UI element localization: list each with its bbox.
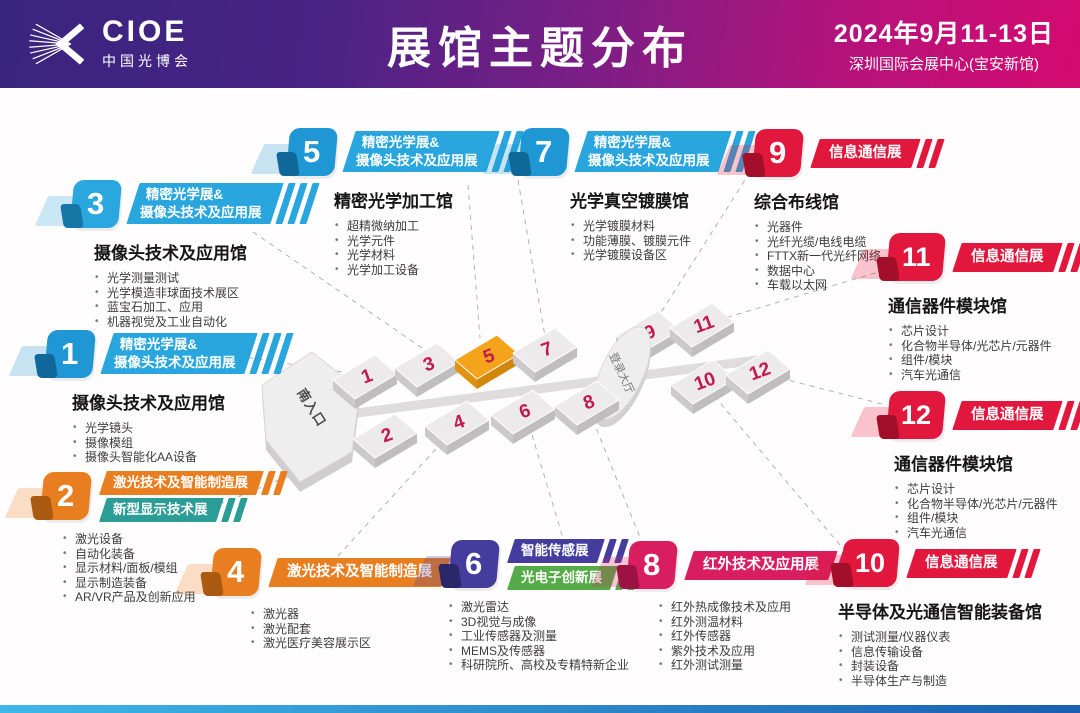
exhibit-item: 光学材料 <box>334 248 529 263</box>
exhibit-item: 紫外技术及应用 <box>658 644 857 659</box>
theme-label: 摄像头技术及应用展 <box>356 152 478 170</box>
exhibit-item: 信息传输设备 <box>838 645 1042 660</box>
theme-ribbon-row: 精密光学展&摄像头技术及应用展 <box>107 333 287 374</box>
theme-ribbon: 信息通信展 <box>952 243 1062 272</box>
section-5-body: 精密光学加工馆超精微纳加工光学元件光学材料光学加工设备 <box>334 187 529 277</box>
exhibit-item: 光学加工设备 <box>334 263 529 278</box>
hall-4-number-badge: 4 <box>210 548 262 596</box>
hall-name: 光学真空镀膜馆 <box>570 187 761 212</box>
exhibit-item: 工业传感器及测量 <box>448 629 638 644</box>
hall-12-number-badge: 12 <box>886 391 946 439</box>
hall-1-number-badge: 1 <box>44 330 96 378</box>
theme-label: 智能传感展 <box>521 542 589 560</box>
exhibit-item: 摄像头智能化AA设备 <box>72 450 287 465</box>
theme-label: 信息通信展 <box>971 406 1044 425</box>
hall-number: 10 <box>855 548 885 579</box>
exhibit-item: 化合物半导体/光芯片/元器件 <box>888 339 1080 354</box>
hall-name: 半导体及光通信智能装备馆 <box>838 598 1042 623</box>
section-3-header: 3精密光学展&摄像头技术及应用展 <box>66 180 313 228</box>
theme-ribbon: 精密光学展&摄像头技术及应用展 <box>342 131 499 172</box>
logo-subtext: 中国光博会 <box>102 51 192 71</box>
hall-9-number-badge: 9 <box>752 129 804 177</box>
bottom-accent-bar <box>0 705 1080 713</box>
hall-8-number-badge: 8 <box>626 541 678 589</box>
exhibit-item: 组件/模块 <box>888 353 1080 368</box>
exhibit-item: 激光器 <box>250 607 470 622</box>
connector-line <box>587 405 643 545</box>
exhibit-item: 封装设备 <box>838 659 1042 674</box>
theme-ribbon-row: 激光技术及智能制造展 <box>103 471 284 495</box>
theme-label: 激光技术及智能制造展 <box>113 474 248 492</box>
theme-ribbon-row: 信息通信展 <box>957 243 1080 272</box>
section-9-header: 9信息通信展 <box>748 129 940 177</box>
theme-ribbon: 信息通信展 <box>810 139 920 168</box>
theme-ribbons: 信息通信展 <box>911 549 1036 578</box>
exhibit-item: 光学测量测试 <box>94 271 313 286</box>
section-5: 5精密光学展&摄像头技术及应用展精密光学加工馆超精微纳加工光学元件光学材料光学加… <box>282 128 529 277</box>
hall-number: 8 <box>643 547 660 583</box>
exhibit-item: 激光配套 <box>250 622 470 637</box>
theme-ribbon-row: 新型显示技术展 <box>103 498 244 522</box>
event-date-venue: 2024年9月11-13日 深圳国际会展中心(宝安新馆) <box>834 14 1054 74</box>
hall-name: 通信器件模块馆 <box>888 292 1080 317</box>
hall-5-number-badge: 5 <box>286 128 338 176</box>
exhibit-item: 红外测试测量 <box>658 658 857 673</box>
theme-ribbon: 智能传感展 <box>507 539 604 563</box>
exhibit-item-list: 光学镀膜材料功能薄膜、镀膜元件光学镀膜设备区 <box>570 219 761 263</box>
theme-ribbons: 信息通信展 <box>957 243 1080 272</box>
hall-number: 7 <box>535 134 552 170</box>
exhibit-item: 汽车光通信 <box>894 526 1080 541</box>
hall-number: 11 <box>902 242 931 273</box>
event-date: 2024年9月11-13日 <box>834 14 1054 50</box>
section-12-header: 12信息通信展 <box>882 391 1080 439</box>
theme-ribbon-row: 信息通信展 <box>911 549 1036 578</box>
section-7-body: 光学真空镀膜馆光学镀膜材料功能薄膜、镀膜元件光学镀膜设备区 <box>570 187 761 263</box>
theme-ribbon: 信息通信展 <box>906 549 1016 578</box>
exhibit-item: 组件/模块 <box>894 511 1080 526</box>
theme-ribbon: 信息通信展 <box>952 401 1062 430</box>
theme-ribbons: 信息通信展 <box>815 139 940 168</box>
exhibit-item: 红外测温材料 <box>658 615 857 630</box>
theme-label: 精密光学展& <box>120 336 242 354</box>
hall-name: 综合布线馆 <box>754 188 940 213</box>
exhibit-item: 红外传感器 <box>658 629 857 644</box>
hall-number: 12 <box>901 400 931 431</box>
section-10-body: 半导体及光通信智能装备馆测试测量/仪器仪表信息传输设备封装设备半导体生产与制造 <box>838 598 1042 688</box>
hall-number: 4 <box>227 554 244 590</box>
hall-number: 1 <box>61 336 78 372</box>
event-venue: 深圳国际会展中心(宝安新馆) <box>834 53 1054 74</box>
hall-2-number-badge: 2 <box>40 472 92 520</box>
section-11-header: 11信息通信展 <box>882 233 1080 281</box>
theme-label: 信息通信展 <box>971 248 1044 267</box>
hall-number: 6 <box>465 546 482 582</box>
hall-number: 9 <box>769 135 786 171</box>
hall-3-number-badge: 3 <box>70 180 122 228</box>
exhibit-item: 红外热成像技术及应用 <box>658 600 857 615</box>
exhibit-item: 光学模造非球面技术展区 <box>94 286 313 301</box>
section-1-body: 摄像头技术及应用馆光学镜头摄像模组摄像头智能化AA设备 <box>72 389 287 465</box>
theme-label: 信息通信展 <box>829 144 902 163</box>
exhibit-item: 激光医疗美容展示区 <box>250 636 470 651</box>
exhibit-item: 汽车光通信 <box>888 368 1080 383</box>
ribbon-stripe <box>233 498 248 522</box>
hall-name: 精密光学加工馆 <box>334 187 529 212</box>
theme-label: 精密光学展& <box>594 134 716 152</box>
exhibit-item: 超精微纳加工 <box>334 219 529 234</box>
section-4-body: 激光器激光配套激光医疗美容展示区 <box>250 607 470 651</box>
exhibit-item: 芯片设计 <box>888 324 1080 339</box>
hall-name: 通信器件模块馆 <box>894 450 1080 475</box>
hall-6-number-badge: 6 <box>448 540 500 588</box>
section-7: 7精密光学展&摄像头技术及应用展光学真空镀膜馆光学镀膜材料功能薄膜、镀膜元件光学… <box>514 128 761 263</box>
hall-block-4: 4 <box>425 401 489 455</box>
section-3: 3精密光学展&摄像头技术及应用展摄像头技术及应用馆光学测量测试光学模造非球面技术… <box>66 180 313 329</box>
section-8-body: 红外热成像技术及应用红外测温材料红外传感器紫外技术及应用红外测试测量 <box>658 600 857 673</box>
section-1-header: 1精密光学展&摄像头技术及应用展 <box>40 330 287 378</box>
exhibit-item: 功能薄膜、镀膜元件 <box>570 234 761 249</box>
hall-block-7: 7 <box>513 328 577 382</box>
hall-number: 2 <box>57 478 74 514</box>
exhibit-item: 激光设备 <box>62 532 284 547</box>
theme-label: 光电子创新展 <box>521 569 602 587</box>
hall-number: 5 <box>303 134 320 170</box>
section-3-body: 摄像头技术及应用馆光学测量测试光学模造非球面技术展区蓝宝石加工、应用机器视觉及工… <box>94 239 313 329</box>
hall-block-11: 11 <box>670 303 734 357</box>
theme-ribbon: 激光技术及智能制造展 <box>99 471 264 495</box>
theme-label: 精密光学展& <box>146 186 267 204</box>
cioe-logo-icon <box>26 15 92 73</box>
exhibit-item: 蓝宝石加工、应用 <box>94 300 313 315</box>
exhibit-item: 光学镀膜材料 <box>570 219 761 234</box>
section-1: 1精密光学展&摄像头技术及应用展摄像头技术及应用馆光学镜头摄像模组摄像头智能化A… <box>40 330 287 465</box>
exhibit-item: MEMS及传感器 <box>448 644 638 659</box>
hall-name: 摄像头技术及应用馆 <box>72 389 287 414</box>
exhibition-map: 南入口1357911登录大厅24681012 <box>262 303 790 492</box>
exhibit-item-list: 光学镜头摄像模组摄像头智能化AA设备 <box>72 421 287 465</box>
exhibit-item: 摄像模组 <box>72 436 287 451</box>
hall-10-number-badge: 10 <box>840 539 900 587</box>
theme-label: 新型显示技术展 <box>113 501 208 519</box>
section-11-body: 通信器件模块馆芯片设计化合物半导体/光芯片/元器件组件/模块汽车光通信 <box>888 292 1080 382</box>
theme-label: 精密光学展& <box>362 134 484 152</box>
theme-ribbons: 信息通信展 <box>957 401 1080 430</box>
exhibit-item: 芯片设计 <box>894 482 1080 497</box>
theme-ribbons: 激光技术及智能制造展新型显示技术展 <box>103 471 284 521</box>
hall-7-number-badge: 7 <box>518 128 570 176</box>
exhibit-item: 机器视觉及工业自动化 <box>94 315 313 330</box>
theme-ribbon: 精密光学展&摄像头技术及应用展 <box>100 333 257 374</box>
exhibit-item-list: 芯片设计化合物半导体/光芯片/元器件组件/模块汽车光通信 <box>894 482 1080 540</box>
page: 南入口1357911登录大厅24681012 CIOE 中国光博会 展馆主题分布… <box>0 0 1080 713</box>
exhibit-item-list: 激光雷达3D视觉与成像工业传感器及测量MEMS及传感器科研院所、高校及专精特新企… <box>448 600 638 673</box>
theme-label: 摄像头技术及应用展 <box>140 204 262 222</box>
hall-block-12: 12 <box>726 350 790 404</box>
exhibit-item-list: 超精微纳加工光学元件光学材料光学加工设备 <box>334 219 529 277</box>
section-10-header: 10信息通信展 <box>836 539 1042 587</box>
hall-11-number-badge: 11 <box>886 233 946 281</box>
hall-name: 摄像头技术及应用馆 <box>94 239 313 264</box>
page-title: 展馆主题分布 <box>387 12 693 76</box>
cioe-logo: CIOE 中国光博会 <box>26 15 192 73</box>
header: CIOE 中国光博会 展馆主题分布 2024年9月11-13日 深圳国际会展中心… <box>0 0 1080 88</box>
theme-label: 激光技术及智能制造展 <box>287 563 432 582</box>
exhibit-item: 半导体生产与制造 <box>838 674 1042 689</box>
exhibit-item: 光学元件 <box>334 234 529 249</box>
hall-block-5: 5 <box>455 335 519 389</box>
theme-ribbon: 精密光学展&摄像头技术及应用展 <box>126 183 283 224</box>
theme-label: 红外技术及应用展 <box>703 556 819 575</box>
exhibit-item: 科研院所、高校及专精特新企业 <box>448 658 638 673</box>
theme-label: 摄像头技术及应用展 <box>588 152 710 170</box>
exhibit-item: 激光雷达 <box>448 600 638 615</box>
exhibit-item: 3D视觉与成像 <box>448 615 638 630</box>
section-10: 10信息通信展半导体及光通信智能装备馆测试测量/仪器仪表信息传输设备封装设备半导… <box>836 539 1042 688</box>
theme-ribbons: 精密光学展&摄像头技术及应用展 <box>107 333 287 374</box>
exhibit-item: 化合物半导体/光芯片/元器件 <box>894 497 1080 512</box>
exhibit-item: 光学镀膜设备区 <box>570 248 761 263</box>
section-11: 11信息通信展通信器件模块馆芯片设计化合物半导体/光芯片/元器件组件/模块汽车光… <box>882 233 1080 382</box>
exhibit-item-list: 激光器激光配套激光医疗美容展示区 <box>250 607 470 651</box>
theme-ribbon-row: 信息通信展 <box>957 401 1080 430</box>
exhibit-item-list: 芯片设计化合物半导体/光芯片/元器件组件/模块汽车光通信 <box>888 324 1080 382</box>
hall-block-3: 3 <box>395 343 459 397</box>
connector-line <box>527 418 565 545</box>
section-2-header: 2激光技术及智能制造展新型显示技术展 <box>36 471 284 521</box>
theme-ribbon-row: 信息通信展 <box>815 139 940 168</box>
theme-ribbon: 新型显示技术展 <box>99 498 223 522</box>
theme-label: 摄像头技术及应用展 <box>114 354 236 372</box>
connector-line <box>705 385 840 545</box>
ribbon-stripe <box>221 498 236 522</box>
section-6-body: 激光雷达3D视觉与成像工业传感器及测量MEMS及传感器科研院所、高校及专精特新企… <box>448 600 638 673</box>
exhibit-item-list: 测试测量/仪器仪表信息传输设备封装设备半导体生产与制造 <box>838 630 1042 688</box>
theme-ribbon: 精密光学展&摄像头技术及应用展 <box>574 131 731 172</box>
exhibit-item-list: 光学测量测试光学模造非球面技术展区蓝宝石加工、应用机器视觉及工业自动化 <box>94 271 313 329</box>
section-12-body: 通信器件模块馆芯片设计化合物半导体/光芯片/元器件组件/模块汽车光通信 <box>894 450 1080 540</box>
section-12: 12信息通信展通信器件模块馆芯片设计化合物半导体/光芯片/元器件组件/模块汽车光… <box>882 391 1080 540</box>
exhibit-item-list: 红外热成像技术及应用红外测温材料红外传感器紫外技术及应用红外测试测量 <box>658 600 857 673</box>
exhibit-item: 测试测量/仪器仪表 <box>838 630 1042 645</box>
logo-text: CIOE <box>102 17 192 47</box>
theme-label: 信息通信展 <box>925 554 998 573</box>
hall-block-2: 2 <box>353 414 417 468</box>
hall-number: 3 <box>87 186 104 222</box>
exhibit-item: 光学镜头 <box>72 421 287 436</box>
